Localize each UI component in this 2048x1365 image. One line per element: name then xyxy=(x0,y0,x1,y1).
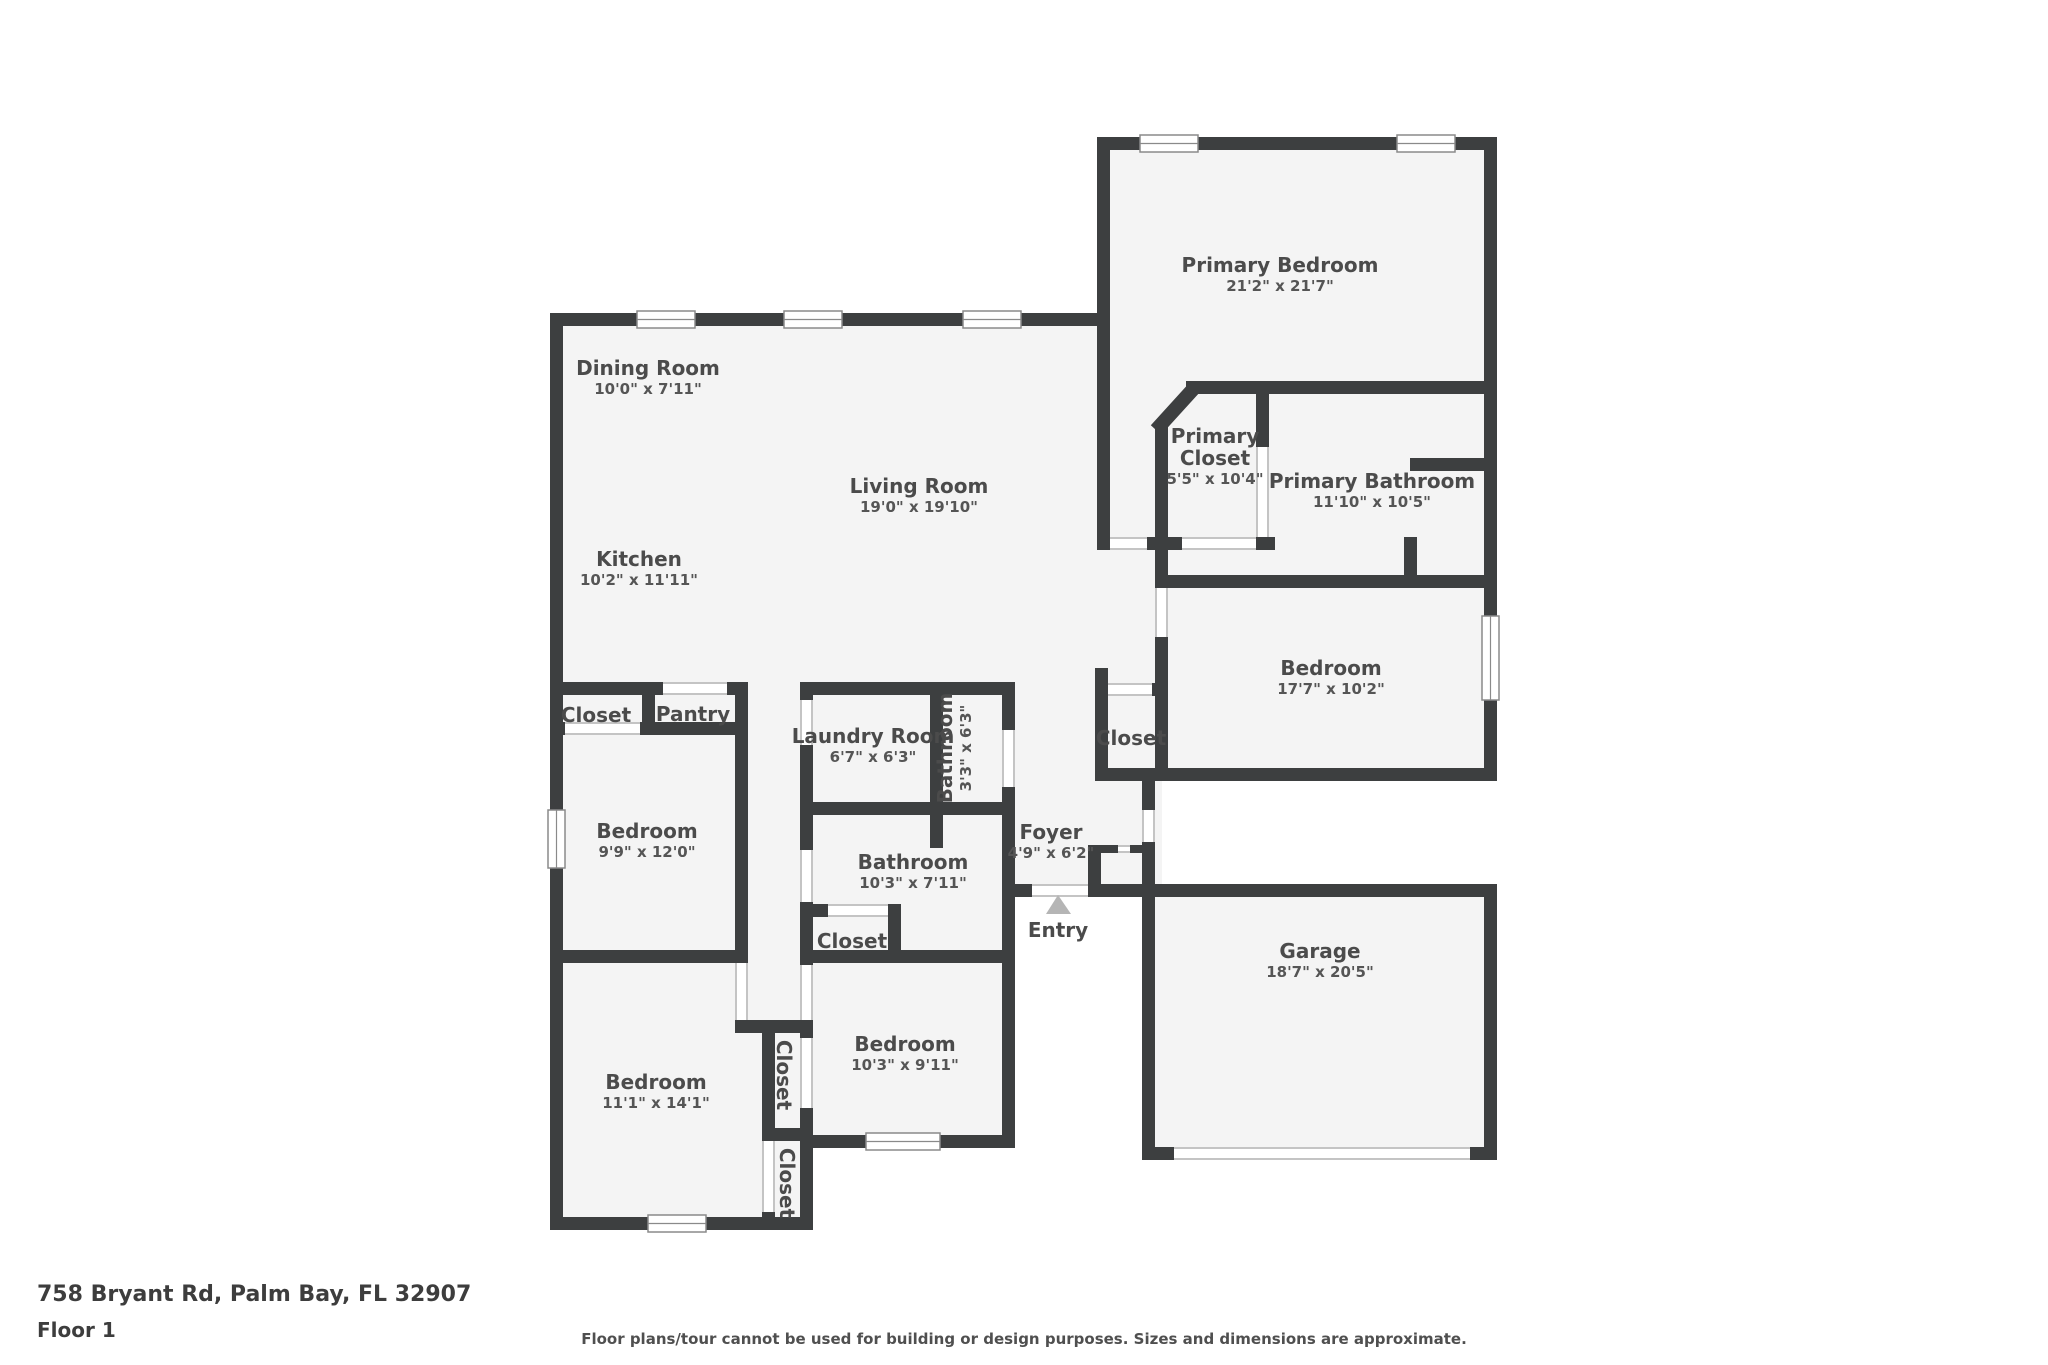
room-label-bedroom-left-mid: Bedroom9'9" x 12'0" xyxy=(596,819,697,861)
room-label-foyer: Foyer4'9" x 6'2" xyxy=(1008,820,1095,862)
property-address: 758 Bryant Rd, Palm Bay, FL 32907 xyxy=(37,1282,471,1307)
room-label-pantry: Pantry xyxy=(656,702,730,726)
room-name: Kitchen xyxy=(596,547,682,571)
room-name: Closet xyxy=(772,1040,796,1111)
room-name: Closet xyxy=(817,929,888,953)
room-name: Primary Bathroom xyxy=(1269,469,1475,493)
room-label-living-room: Living Room19'0" x 19'10" xyxy=(850,474,989,516)
room-label-primary-closet: PrimaryCloset5'5" x 10'4" xyxy=(1166,424,1263,488)
room-dimensions: 10'3" x 7'11" xyxy=(859,874,967,892)
disclaimer-text: Floor plans/tour cannot be used for buil… xyxy=(0,1330,2048,1348)
room-label-dining-room: Dining Room10'0" x 7'11" xyxy=(576,356,720,398)
room-label-bathroom-small: Bathroom3'3" x 6'3" xyxy=(933,693,975,804)
entry-marker: Entry xyxy=(1028,895,1088,942)
room-dimensions: 5'5" x 10'4" xyxy=(1166,470,1263,488)
room-dimensions: 19'0" x 19'10" xyxy=(860,498,978,516)
room-dimensions: 10'2" x 11'11" xyxy=(580,571,698,589)
room-label-bedroom-right: Bedroom17'7" x 10'2" xyxy=(1277,656,1385,698)
room-name: Bedroom xyxy=(605,1070,706,1094)
room-dimensions: 10'0" x 7'11" xyxy=(594,380,702,398)
room-dimensions: 4'9" x 6'2" xyxy=(1008,844,1095,862)
room-name: Foyer xyxy=(1019,820,1082,844)
room-name: Closet xyxy=(1096,726,1167,750)
room-dimensions: 11'1" x 14'1" xyxy=(602,1094,710,1112)
room-name: Bathroom xyxy=(858,850,969,874)
room-dimensions: 18'7" x 20'5" xyxy=(1266,963,1374,981)
room-name: Laundry Room xyxy=(792,724,955,748)
room-name: Pantry xyxy=(656,702,730,726)
room-label-bedroom-left-bot: Bedroom11'1" x 14'1" xyxy=(602,1070,710,1112)
room-name: Closet xyxy=(775,1148,799,1219)
room-name: Closet xyxy=(1180,446,1251,470)
room-label-kitchen: Kitchen10'2" x 11'11" xyxy=(580,547,698,589)
room-label-closet-hall: Closet xyxy=(1096,726,1167,750)
room-dimensions: 6'7" x 6'3" xyxy=(830,748,917,766)
room-label-closet-top-row: Closet xyxy=(561,703,632,727)
room-dimensions: 11'10" x 10'5" xyxy=(1313,493,1431,511)
room-name: Bedroom xyxy=(854,1032,955,1056)
room-label-closet-vert-top: Closet xyxy=(772,1040,796,1111)
room-name: Living Room xyxy=(850,474,989,498)
room-dimensions: 17'7" x 10'2" xyxy=(1277,680,1385,698)
room-name: Primary xyxy=(1171,424,1260,448)
room-dimensions: 10'3" x 9'11" xyxy=(851,1056,959,1074)
room-dimensions: 3'3" x 6'3" xyxy=(957,705,975,792)
room-name: Bedroom xyxy=(596,819,697,843)
room-dimensions: 21'2" x 21'7" xyxy=(1226,277,1334,295)
room-label-bedroom-center: Bedroom10'3" x 9'11" xyxy=(851,1032,959,1074)
entry-label: Entry xyxy=(1028,918,1088,942)
room-label-closet-bath: Closet xyxy=(817,929,888,953)
floor-plan-drawing: Primary Bedroom21'2" x 21'7"Dining Room1… xyxy=(0,0,2048,1365)
room-name: Closet xyxy=(561,703,632,727)
room-name: Bedroom xyxy=(1280,656,1381,680)
room-label-closet-vert-bot: Closet xyxy=(775,1148,799,1219)
room-label-bathroom-main: Bathroom10'3" x 7'11" xyxy=(858,850,969,892)
room-name: Bathroom xyxy=(933,693,957,804)
room-name: Dining Room xyxy=(576,356,720,380)
entry-arrow-icon xyxy=(1046,895,1071,914)
room-name: Garage xyxy=(1279,939,1360,963)
room-dimensions: 9'9" x 12'0" xyxy=(598,843,695,861)
floor-plan-page: Primary Bedroom21'2" x 21'7"Dining Room1… xyxy=(0,0,2048,1365)
room-name: Primary Bedroom xyxy=(1182,253,1379,277)
room-label-garage: Garage18'7" x 20'5" xyxy=(1266,939,1374,981)
